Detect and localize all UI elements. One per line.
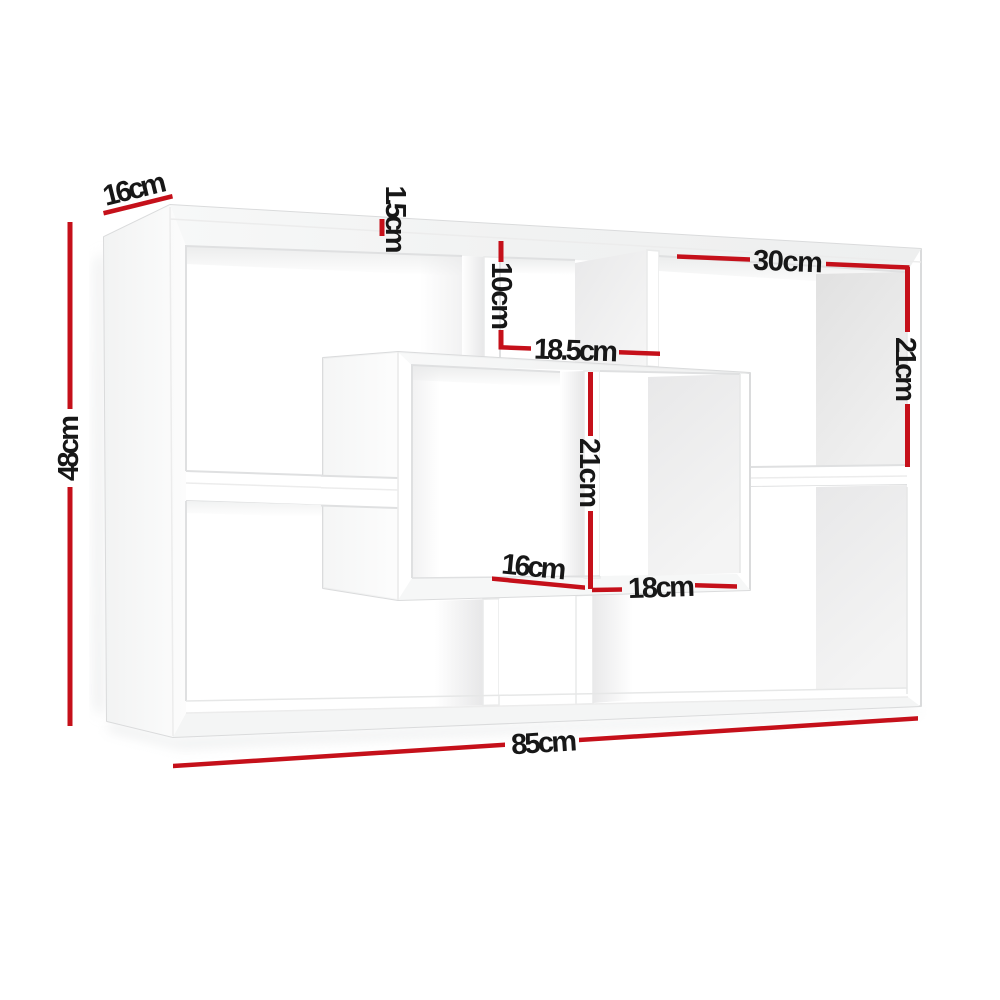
svg-text:18cm: 18cm (627, 571, 695, 605)
svg-text:16cm: 16cm (500, 548, 568, 586)
svg-text:85cm: 85cm (510, 725, 578, 761)
svg-text:10cm: 10cm (485, 262, 517, 330)
svg-text:21cm: 21cm (573, 438, 605, 508)
svg-text:48cm: 48cm (53, 415, 85, 481)
svg-text:21cm: 21cm (889, 337, 921, 402)
svg-text:18.5cm: 18.5cm (533, 334, 618, 369)
svg-text:1.5cm: 1.5cm (379, 186, 411, 254)
svg-text:30cm: 30cm (752, 245, 823, 280)
